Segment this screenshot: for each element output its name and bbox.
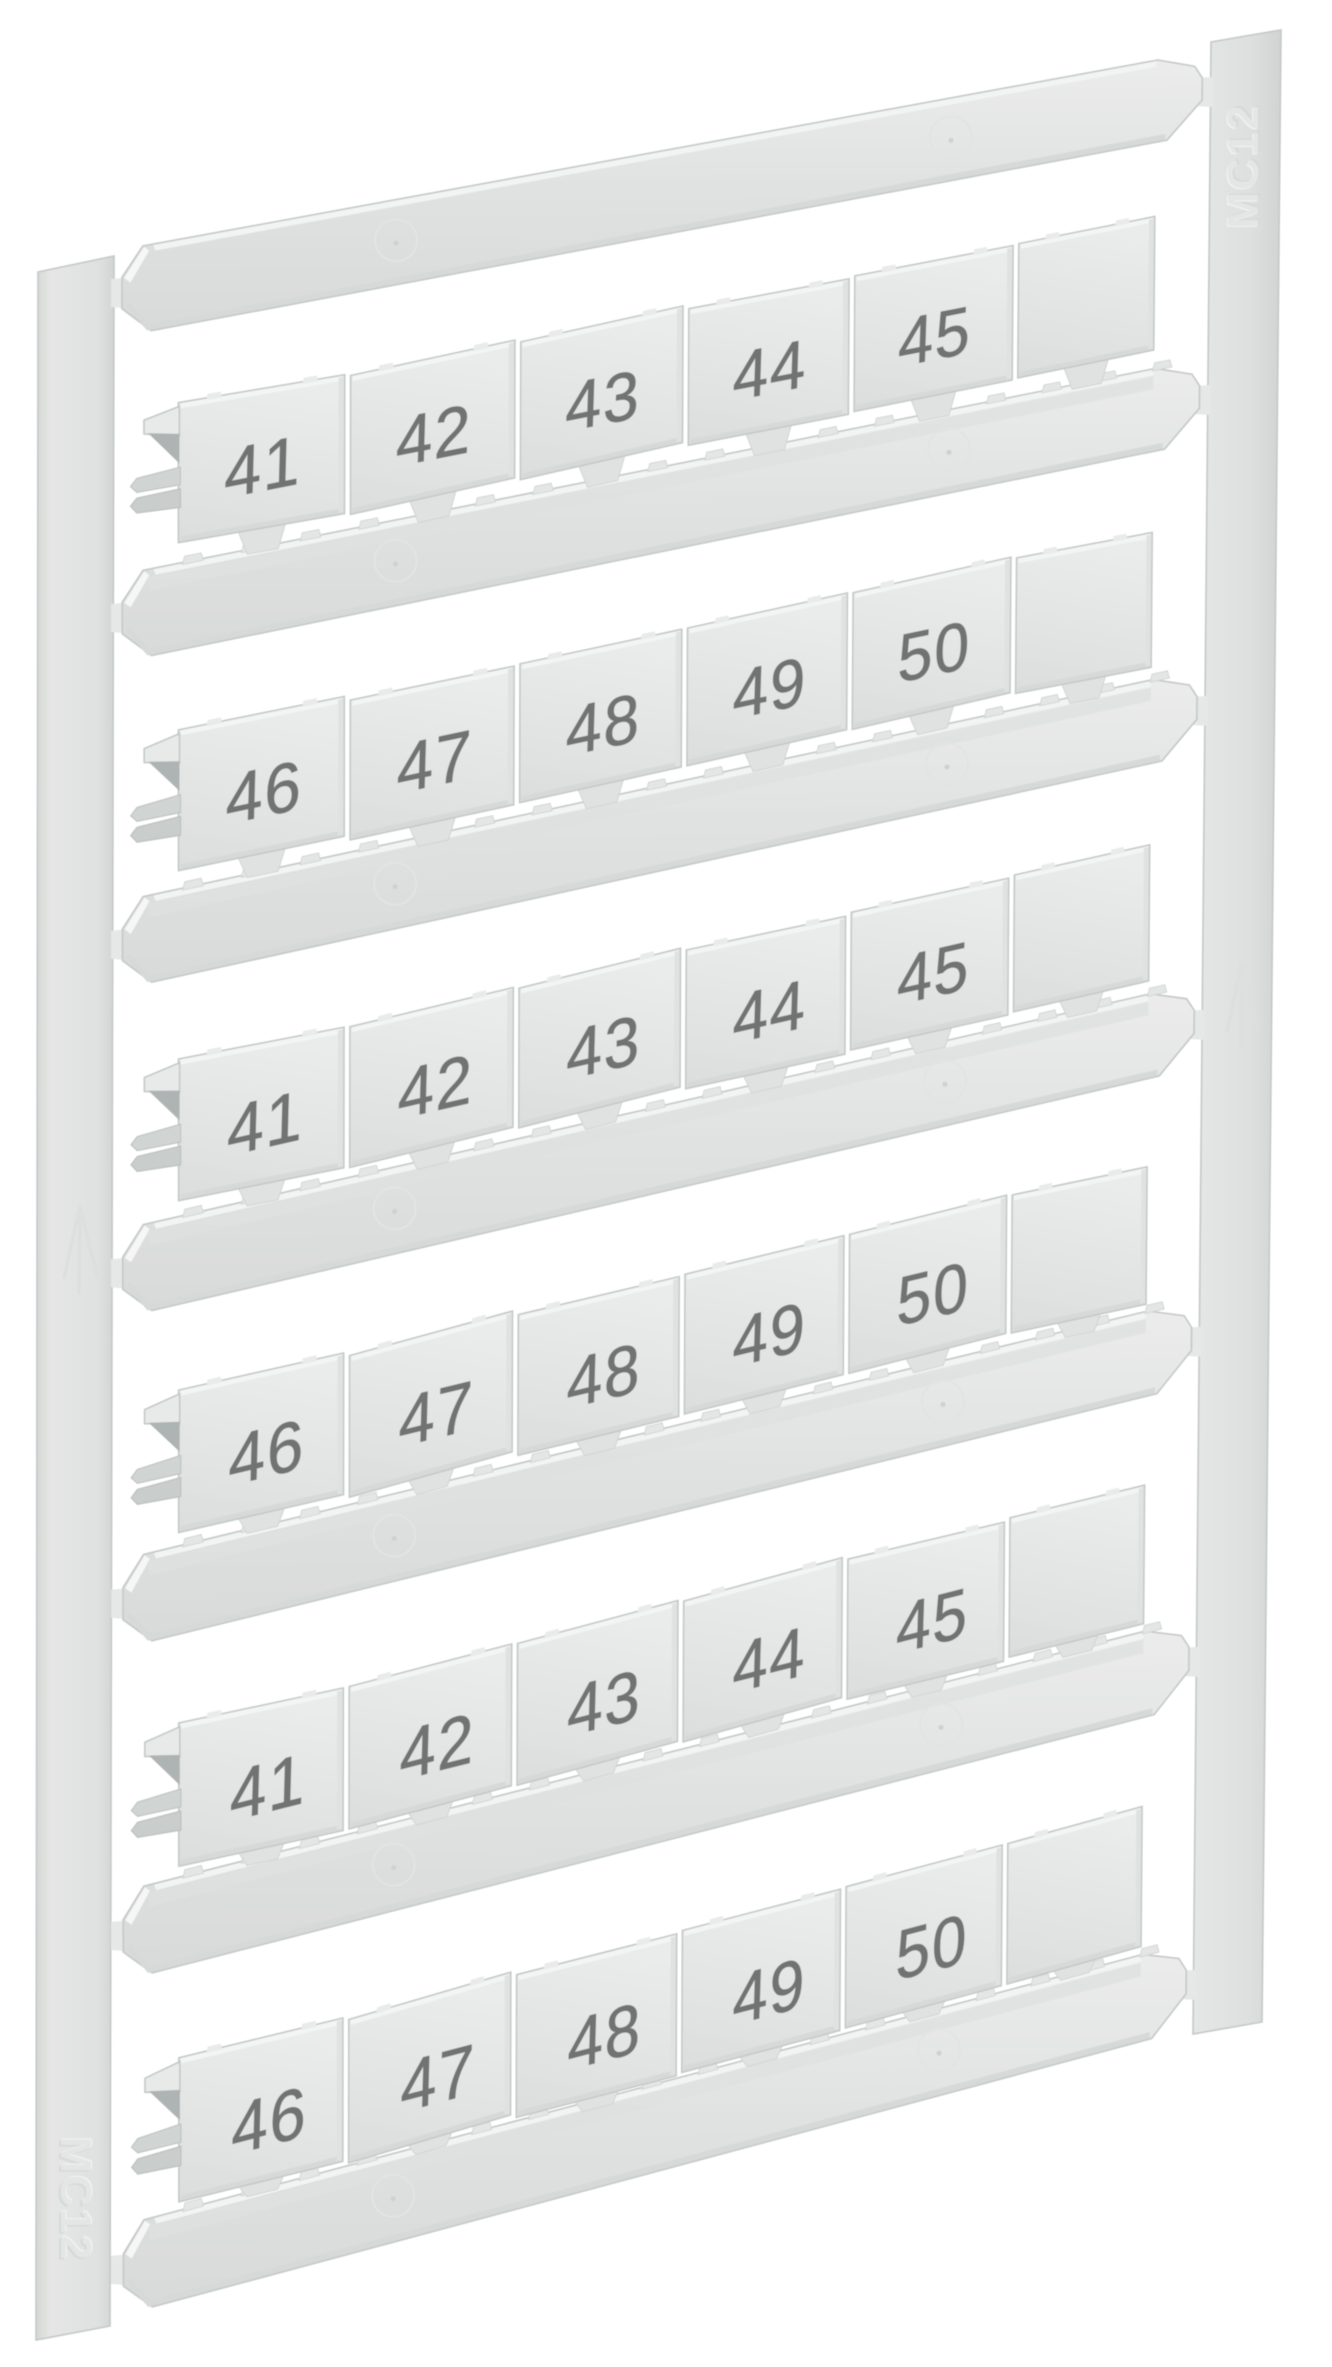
svg-text:MC12: MC12 [1219, 103, 1268, 228]
svg-text:44: 44 [732, 326, 809, 416]
svg-text:46: 46 [225, 745, 304, 840]
svg-text:43: 43 [564, 356, 642, 447]
svg-text:47: 47 [396, 715, 474, 809]
svg-text:MC12: MC12 [51, 2136, 100, 2261]
svg-text:50: 50 [897, 606, 973, 698]
svg-text:45: 45 [897, 291, 973, 381]
svg-text:42: 42 [395, 390, 473, 481]
svg-text:48: 48 [565, 679, 642, 772]
svg-text:49: 49 [732, 643, 808, 735]
svg-text:41: 41 [223, 420, 302, 514]
